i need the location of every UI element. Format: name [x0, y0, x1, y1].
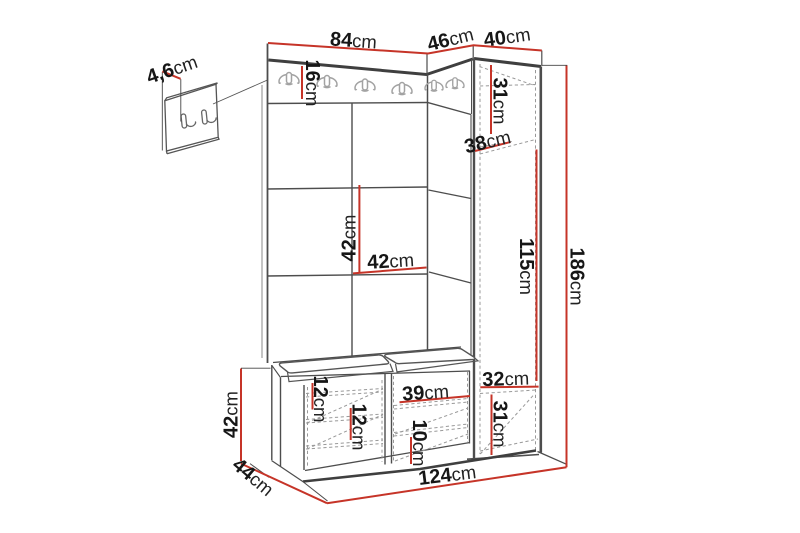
svg-text:31cm: 31cm [489, 78, 511, 125]
svg-text:84cm: 84cm [329, 28, 377, 53]
svg-text:42cm: 42cm [339, 215, 361, 262]
svg-text:42cm: 42cm [221, 391, 243, 438]
svg-text:186cm: 186cm [566, 247, 588, 305]
svg-text:115cm: 115cm [515, 238, 537, 295]
svg-text:31cm: 31cm [489, 401, 511, 448]
svg-text:12cm: 12cm [348, 404, 370, 451]
svg-text:10cm: 10cm [408, 420, 430, 467]
svg-text:12cm: 12cm [309, 376, 331, 423]
svg-text:32cm: 32cm [482, 367, 530, 391]
svg-text:39cm: 39cm [401, 380, 449, 405]
svg-text:42cm: 42cm [367, 249, 415, 274]
svg-text:16cm: 16cm [301, 60, 323, 107]
